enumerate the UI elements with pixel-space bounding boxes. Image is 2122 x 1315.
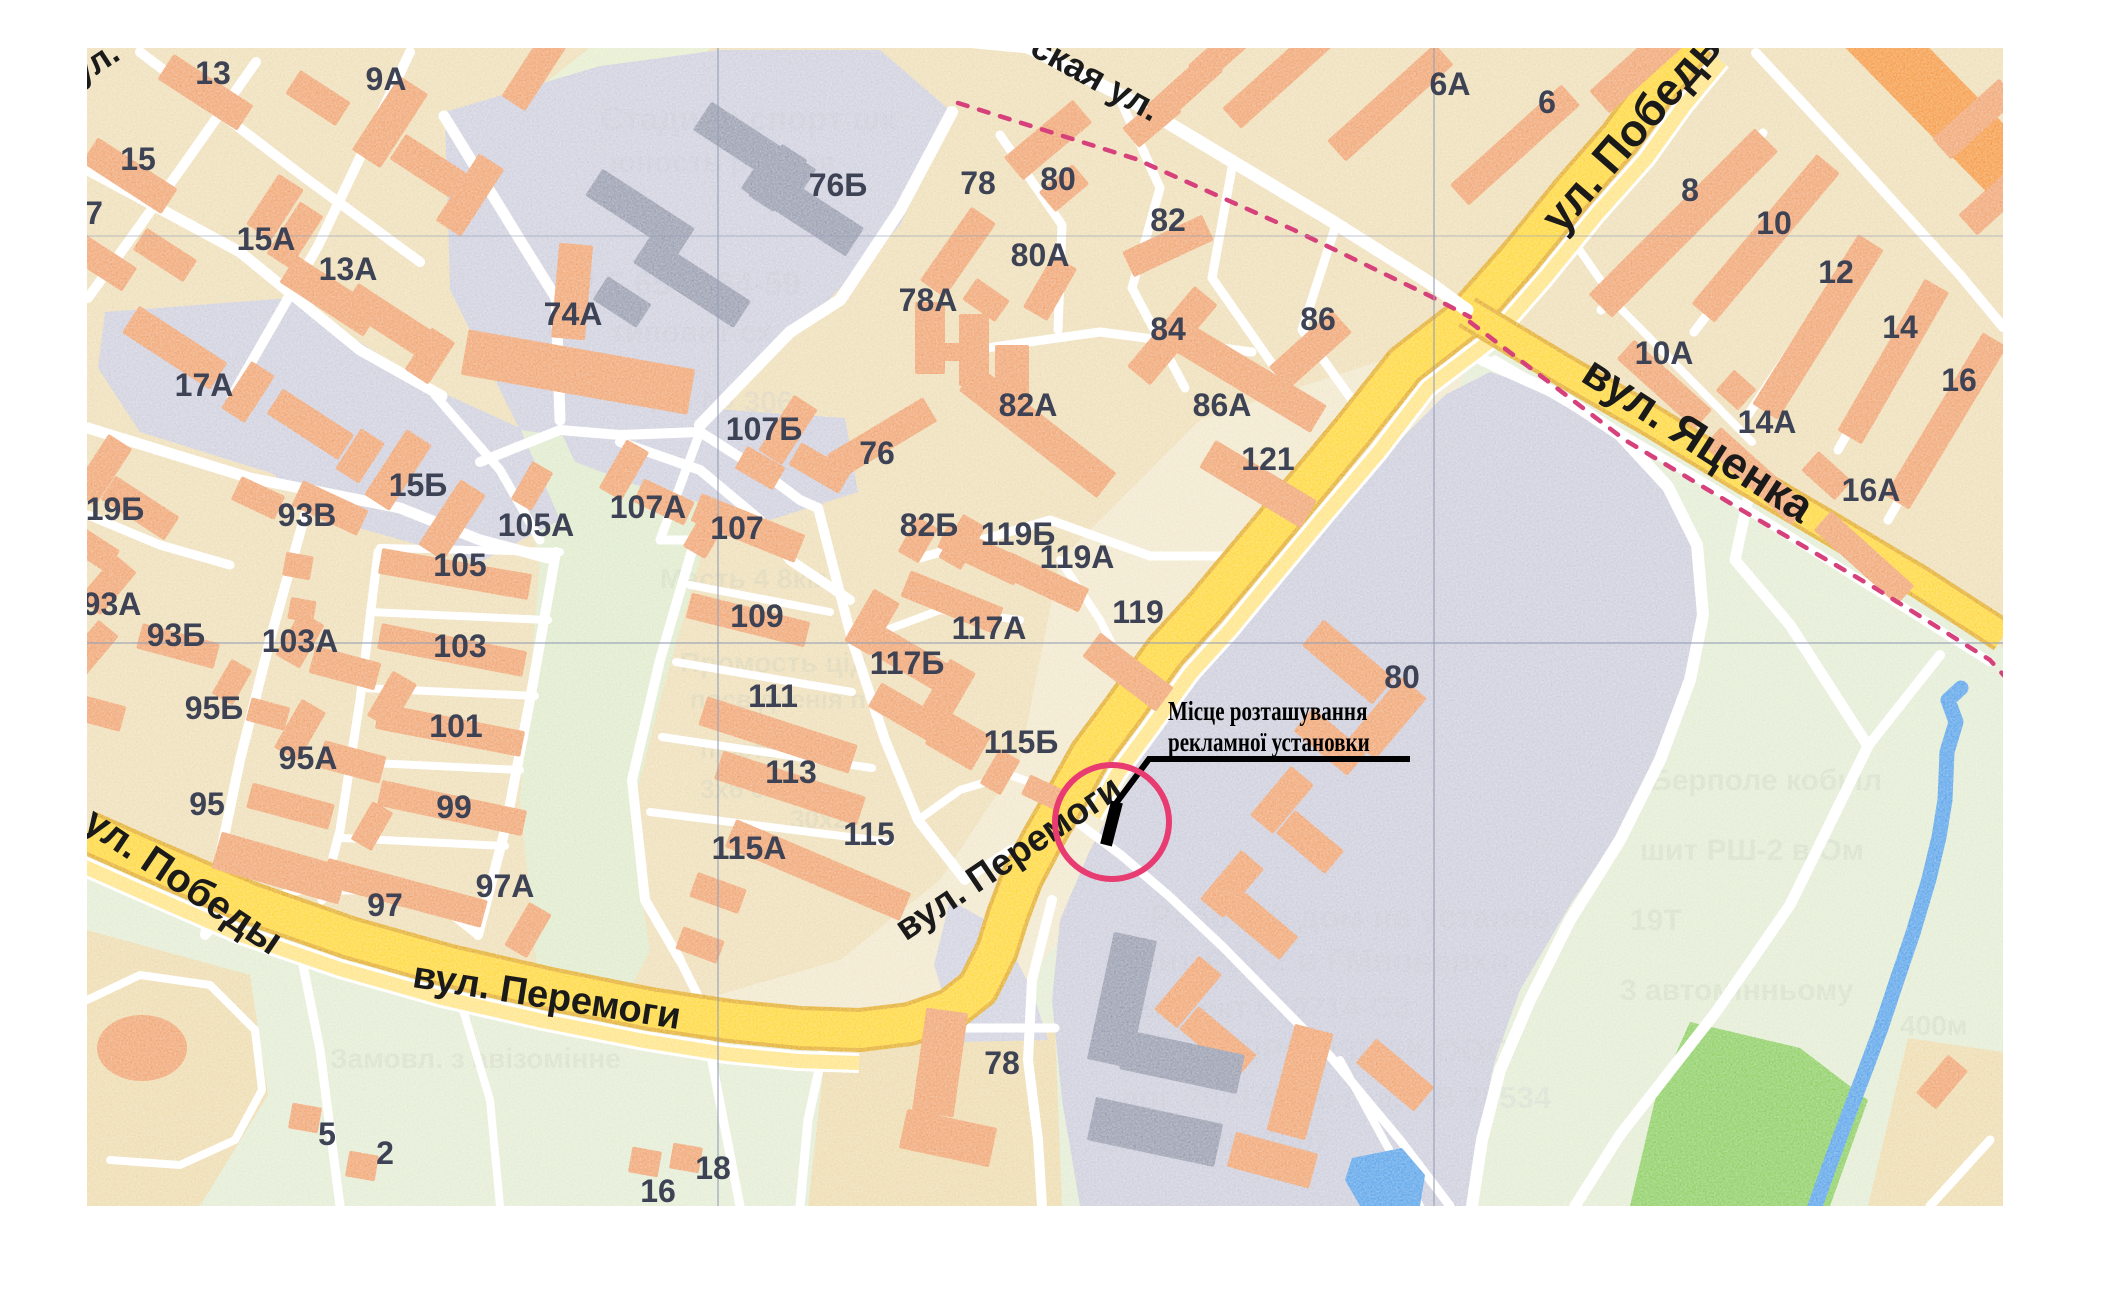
- svg-text:78А: 78А: [899, 282, 958, 318]
- svg-text:15А: 15А: [237, 221, 296, 257]
- svg-text:7: 7: [85, 195, 103, 231]
- svg-text:82Б: 82Б: [900, 507, 959, 543]
- svg-text:78: 78: [960, 165, 996, 201]
- svg-text:101: 101: [429, 708, 482, 744]
- svg-text:105А: 105А: [498, 507, 575, 543]
- svg-text:80А: 80А: [1011, 237, 1070, 273]
- svg-text:74А: 74А: [544, 296, 603, 332]
- svg-text:18: 18: [695, 1150, 731, 1186]
- svg-text:15: 15: [120, 141, 156, 177]
- svg-text:82А: 82А: [999, 387, 1058, 423]
- svg-text:13: 13: [195, 55, 231, 91]
- svg-text:95А: 95А: [279, 740, 338, 776]
- svg-text:80: 80: [1040, 161, 1076, 197]
- svg-text:19Б: 19Б: [86, 491, 145, 527]
- svg-text:115Б: 115Б: [984, 724, 1059, 760]
- svg-text:97: 97: [367, 887, 403, 923]
- svg-text:97А: 97А: [476, 868, 535, 904]
- svg-text:82: 82: [1150, 202, 1186, 238]
- svg-text:78: 78: [984, 1045, 1020, 1081]
- svg-text:115: 115: [843, 816, 895, 852]
- svg-text:6: 6: [1538, 84, 1556, 120]
- svg-text:111: 111: [748, 678, 798, 714]
- svg-text:16: 16: [1941, 362, 1977, 398]
- svg-text:107: 107: [710, 510, 763, 546]
- svg-text:99: 99: [436, 789, 472, 825]
- svg-text:76: 76: [859, 435, 895, 471]
- svg-text:10: 10: [1756, 205, 1792, 241]
- svg-text:84: 84: [1150, 311, 1186, 347]
- svg-text:93Б: 93Б: [147, 617, 206, 653]
- svg-text:107А: 107А: [610, 489, 687, 525]
- svg-text:105: 105: [433, 547, 486, 583]
- svg-text:93В: 93В: [278, 497, 337, 533]
- svg-text:93А: 93А: [83, 586, 142, 622]
- svg-text:8: 8: [1681, 172, 1699, 208]
- svg-text:16: 16: [640, 1173, 676, 1209]
- svg-text:103: 103: [433, 628, 486, 664]
- svg-text:86А: 86А: [1193, 387, 1252, 423]
- svg-text:117А: 117А: [952, 610, 1027, 646]
- svg-text:121: 121: [1241, 441, 1294, 477]
- svg-text:76Б: 76Б: [809, 167, 868, 203]
- svg-text:2: 2: [376, 1135, 394, 1171]
- svg-text:117Б: 117Б: [870, 645, 945, 681]
- svg-text:13А: 13А: [319, 251, 378, 287]
- svg-text:119А: 119А: [1040, 539, 1115, 575]
- svg-text:Місце розташування: Місце розташування: [1168, 697, 1367, 727]
- svg-text:17А: 17А: [175, 367, 234, 403]
- svg-text:80: 80: [1384, 659, 1420, 695]
- svg-text:115А: 115А: [712, 830, 787, 866]
- svg-text:109: 109: [730, 598, 783, 634]
- svg-text:107Б: 107Б: [726, 411, 802, 447]
- svg-text:16А: 16А: [1842, 472, 1901, 508]
- svg-text:6А: 6А: [1430, 66, 1471, 102]
- svg-text:10А: 10А: [1635, 335, 1694, 371]
- svg-text:14А: 14А: [1738, 404, 1797, 440]
- svg-text:5: 5: [318, 1116, 336, 1152]
- svg-text:113: 113: [765, 754, 817, 790]
- svg-text:103А: 103А: [262, 623, 339, 659]
- svg-text:95Б: 95Б: [185, 690, 244, 726]
- svg-text:рекламної установки: рекламної установки: [1168, 728, 1370, 758]
- svg-text:14: 14: [1882, 309, 1918, 345]
- svg-text:12: 12: [1818, 254, 1854, 290]
- svg-text:9А: 9А: [366, 61, 407, 97]
- svg-text:86: 86: [1300, 301, 1336, 337]
- svg-text:15Б: 15Б: [389, 467, 448, 503]
- svg-text:119: 119: [1112, 594, 1164, 630]
- svg-text:95: 95: [189, 786, 225, 822]
